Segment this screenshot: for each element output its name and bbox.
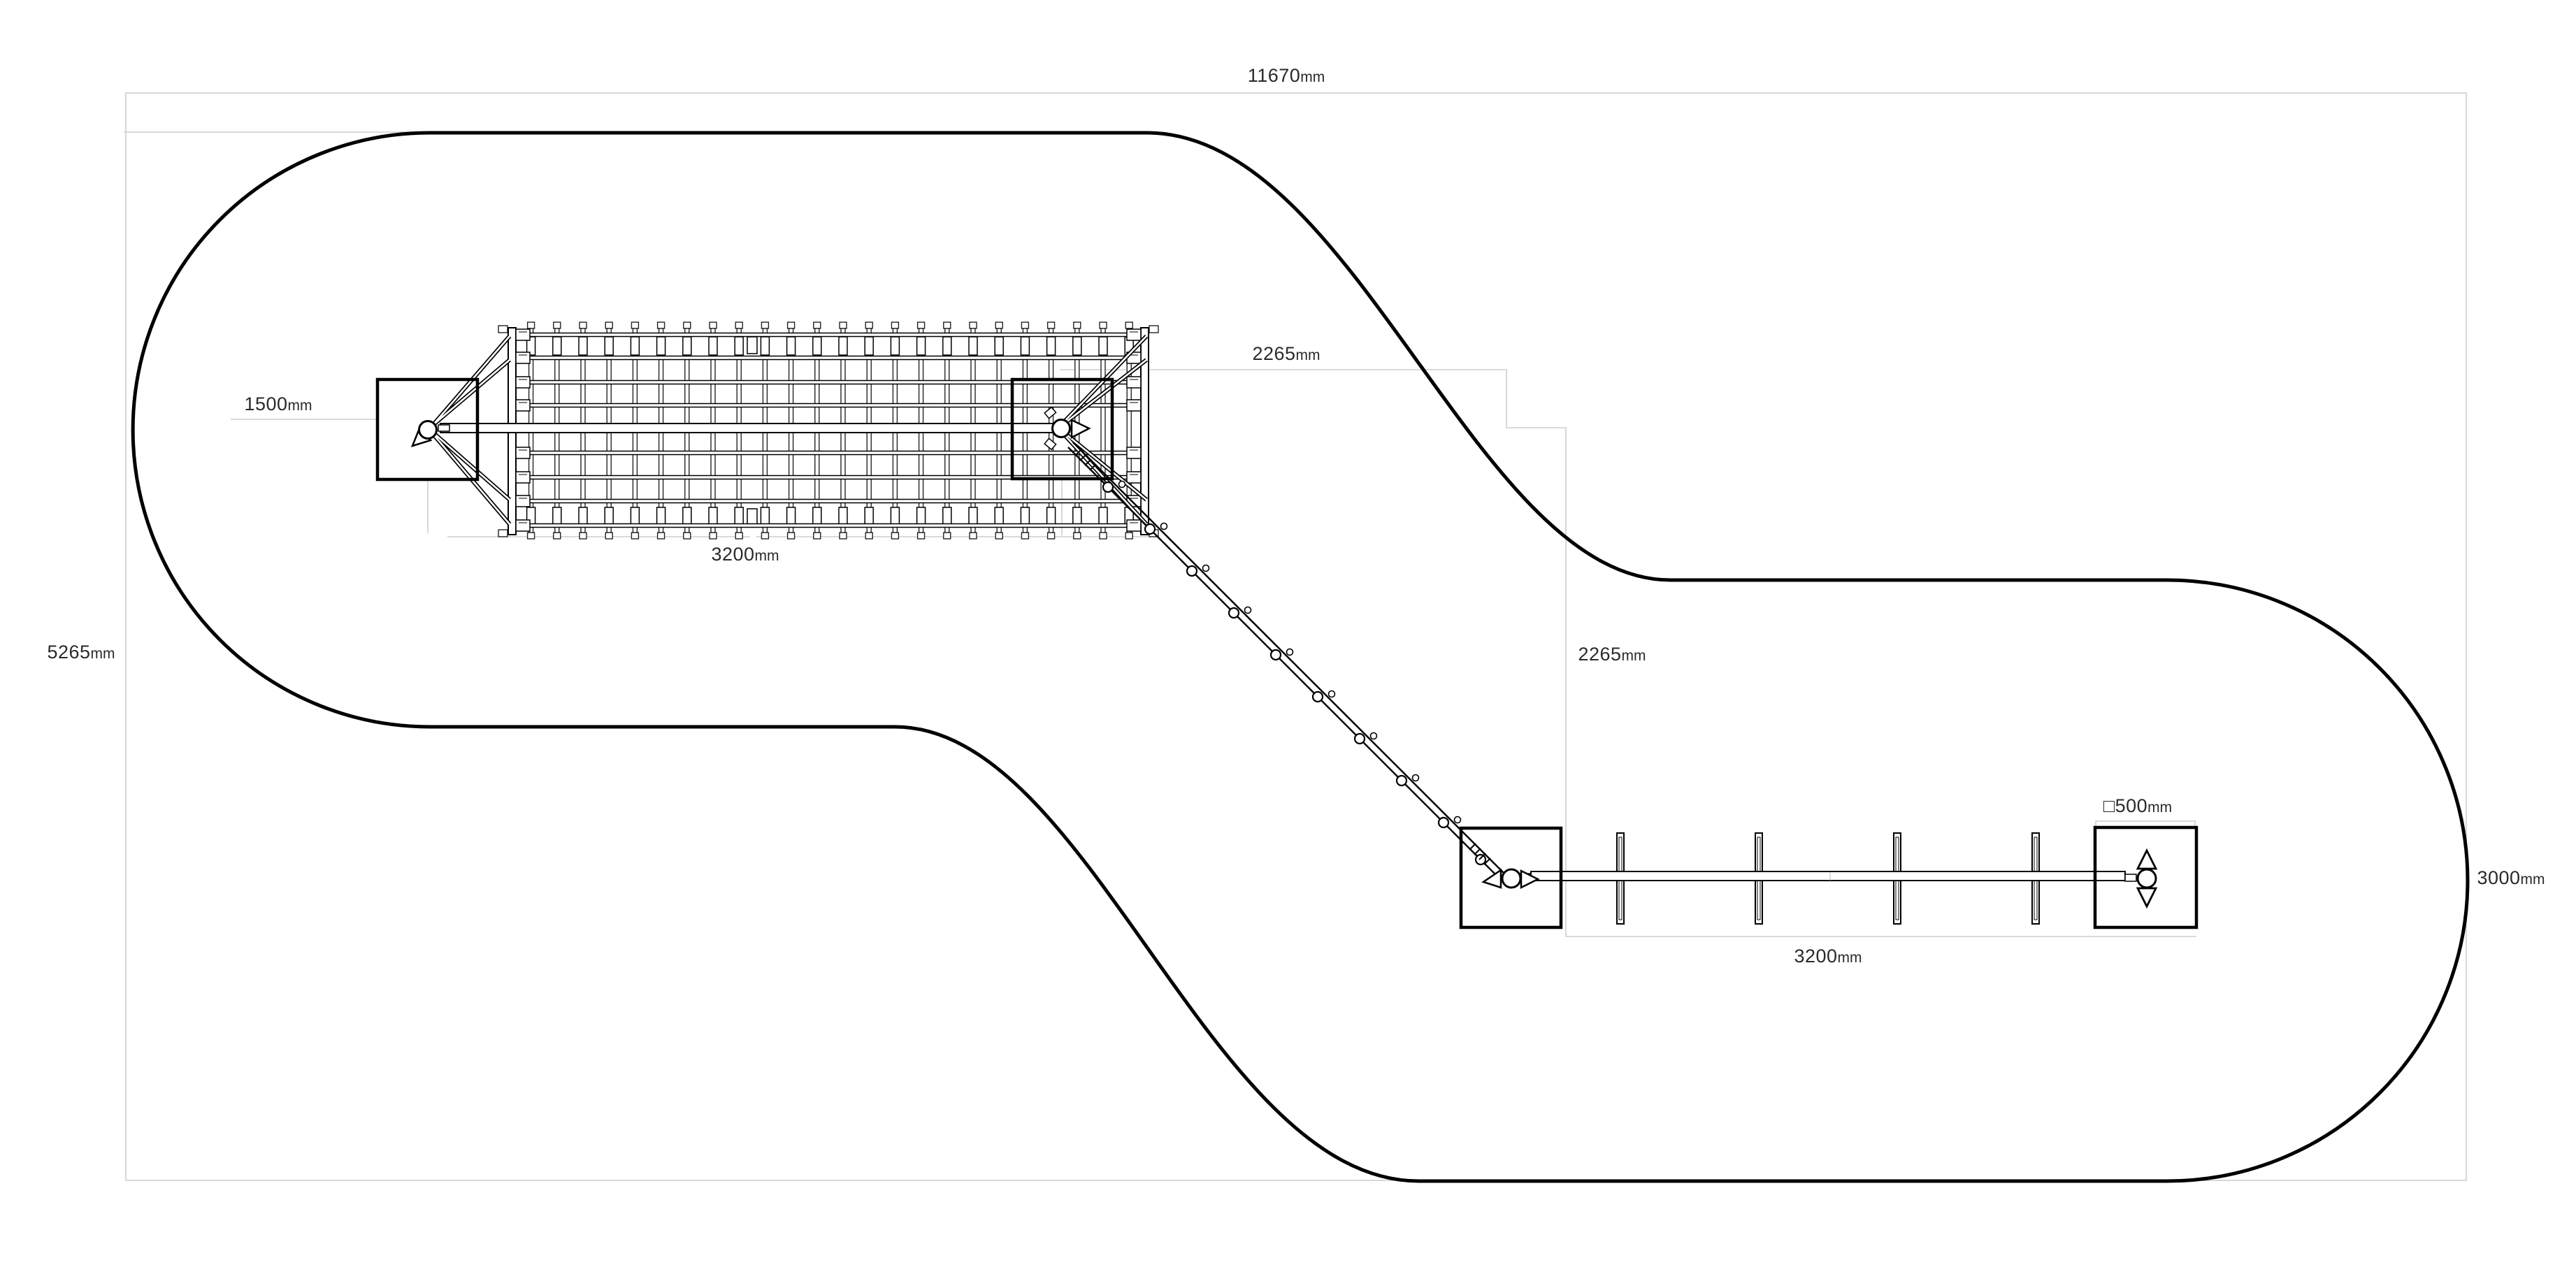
climbing-net-assembly: [377, 318, 1158, 543]
dim-left-offset-label: 1500mm: [244, 393, 312, 414]
dim-net-length-label: 3200mm: [711, 544, 779, 565]
overall-extent-box: [126, 93, 2466, 1180]
dim-upper-clearance-label: 2265mm: [1252, 343, 1320, 364]
dim-overall-height-label: 5265mm: [47, 642, 115, 663]
junction-swivel-joint: [1469, 844, 1538, 888]
connector: [438, 425, 449, 431]
outer-boundary-path: [133, 133, 2468, 1181]
balance-beam-assembly: [1461, 827, 2196, 927]
swivel-left-arrow-icon: [1483, 870, 1501, 888]
dim-post-section-label: □500mm: [2103, 795, 2172, 816]
dim-total-width-label: 11670mm: [1248, 65, 1325, 86]
post-tab: [498, 326, 508, 333]
balance-beam: [1531, 871, 2125, 881]
technical-drawing-canvas: 11670mm 1500mm 2265mm 3200mm 5265mm 2265…: [0, 0, 2576, 1288]
dim-lower-zone-height-label: 3000mm: [2477, 867, 2545, 888]
seam-clamp-top: [747, 337, 757, 354]
seam-clamp-bottom: [747, 509, 757, 526]
pivot-circle-icon: [2138, 869, 2156, 888]
pivot-circle-icon: [419, 421, 437, 439]
end-swivel-joint: [2125, 851, 2156, 906]
swivel-up-arrow-icon: [2138, 851, 2156, 869]
center-spine-beam: [440, 424, 1060, 433]
swivel-down-arrow-icon: [2138, 888, 2156, 906]
dim-beam-length-label: 3200mm: [1794, 946, 1862, 967]
dimension-labels: 11670mm 1500mm 2265mm 3200mm 5265mm 2265…: [47, 65, 2545, 967]
pivot-circle-icon: [1502, 869, 1520, 888]
pivot-circle-icon: [1053, 420, 1070, 437]
post-tab: [1149, 326, 1158, 333]
dim-middle-clearance-label: 2265mm: [1578, 644, 1646, 665]
dimension-guide-lines: [124, 93, 2466, 1180]
post-tab: [498, 530, 508, 537]
connector: [2125, 874, 2136, 881]
plan-drawing: 11670mm 1500mm 2265mm 3200mm 5265mm 2265…: [0, 0, 2576, 1288]
